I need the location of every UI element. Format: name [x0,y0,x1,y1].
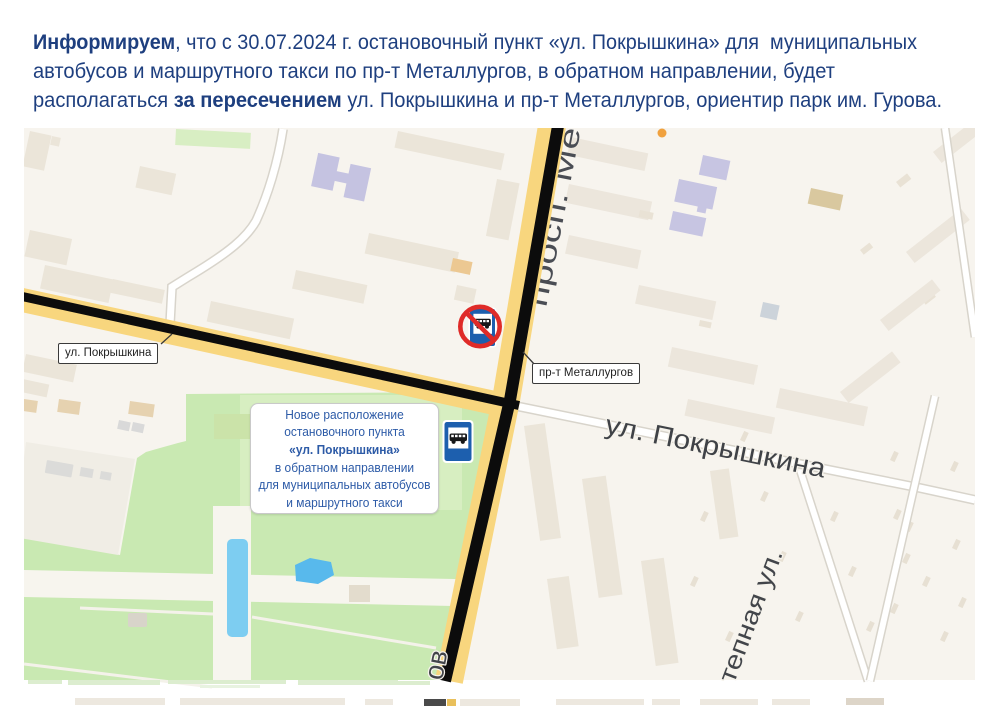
svg-text:ов: ов [418,648,453,683]
